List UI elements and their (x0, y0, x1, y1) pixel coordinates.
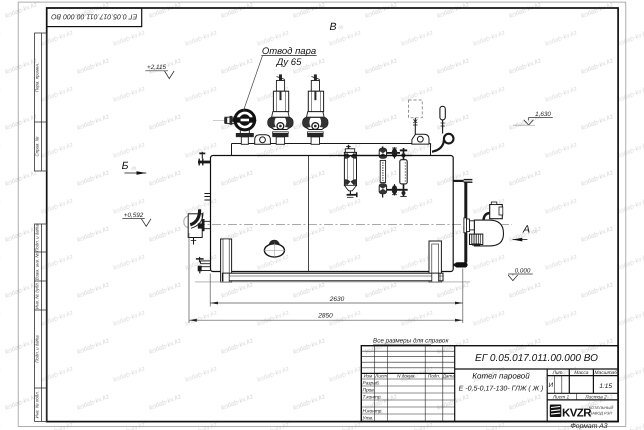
svg-text:1:15: 1:15 (599, 383, 612, 390)
svg-text:N докум.: N докум. (397, 374, 416, 379)
svg-text:1,630: 1,630 (535, 111, 551, 118)
svg-text:Все размеры для справок: Все размеры для справок (373, 338, 449, 345)
svg-text:Взам. инв. №: Взам. инв. № (35, 253, 40, 280)
svg-text:КОТЕЛЬНЫЙ: КОТЕЛЬНЫЙ (589, 405, 614, 410)
svg-text:Перв. примен.: Перв. примен. (35, 63, 40, 92)
svg-text:Инв. № подл.: Инв. № подл. (35, 391, 40, 418)
svg-text:(2): (2) (339, 25, 345, 30)
svg-text:ЕГ 0.05.017.011.00.000 ВО: ЕГ 0.05.017.011.00.000 ВО (475, 353, 598, 364)
svg-text:+2,115: +2,115 (147, 64, 166, 71)
svg-text:Пров.: Пров. (363, 388, 376, 394)
svg-text:Утв.: Утв. (363, 416, 374, 422)
svg-text:Формат А3: Формат А3 (570, 423, 607, 430)
svg-text:0,000: 0,000 (515, 268, 531, 275)
svg-text:Масса: Масса (574, 370, 589, 376)
svg-text:ЗАВОД РЭП: ЗАВОД РЭП (590, 411, 613, 416)
svg-text:Подп.: Подп. (428, 374, 440, 379)
svg-text:+0,592: +0,592 (124, 212, 144, 219)
svg-text:Лист 1: Лист 1 (552, 394, 570, 400)
svg-text:Ду 65: Ду 65 (276, 57, 302, 68)
svg-text:Подп. и дата: Подп. и дата (35, 224, 40, 252)
svg-text:И: И (548, 382, 553, 389)
svg-text:Разраб.: Разраб. (363, 381, 380, 387)
svg-text:ЕГ 0.05.017.011.00.000 ВО: ЕГ 0.05.017.011.00.000 ВО (51, 12, 138, 19)
svg-text:А: А (522, 224, 530, 236)
svg-text:(2): (2) (132, 166, 138, 171)
svg-text:2850: 2850 (317, 312, 333, 319)
svg-text:Лист: Лист (374, 374, 387, 379)
svg-text:Листов 2: Листов 2 (584, 394, 607, 400)
svg-text:Инв. № дубл.: Инв. № дубл. (35, 282, 40, 309)
svg-text:Лит.: Лит. (552, 370, 564, 376)
svg-text:Справ. №: Справ. № (35, 136, 40, 156)
svg-text:Б: Б (122, 160, 129, 172)
svg-text:Масштаб: Масштаб (594, 370, 617, 376)
svg-text:(2): (2) (533, 229, 539, 234)
svg-text:2630: 2630 (329, 296, 345, 303)
svg-text:В: В (329, 21, 336, 33)
svg-text:Изм: Изм (364, 374, 373, 379)
svg-text:Дата: Дата (442, 374, 456, 379)
svg-text:Е -0,5-0,17-130- ГЛЖ ( Ж ): Е -0,5-0,17-130- ГЛЖ ( Ж ) (459, 385, 544, 393)
svg-text:KVZR: KVZR (562, 408, 592, 420)
svg-text:Н.контр.: Н.контр. (363, 409, 383, 415)
svg-text:Подп. и дата: Подп. и дата (35, 335, 40, 363)
svg-text:Котел паровой: Котел паровой (472, 372, 530, 381)
svg-text:Т.контр.: Т.контр. (363, 395, 382, 401)
